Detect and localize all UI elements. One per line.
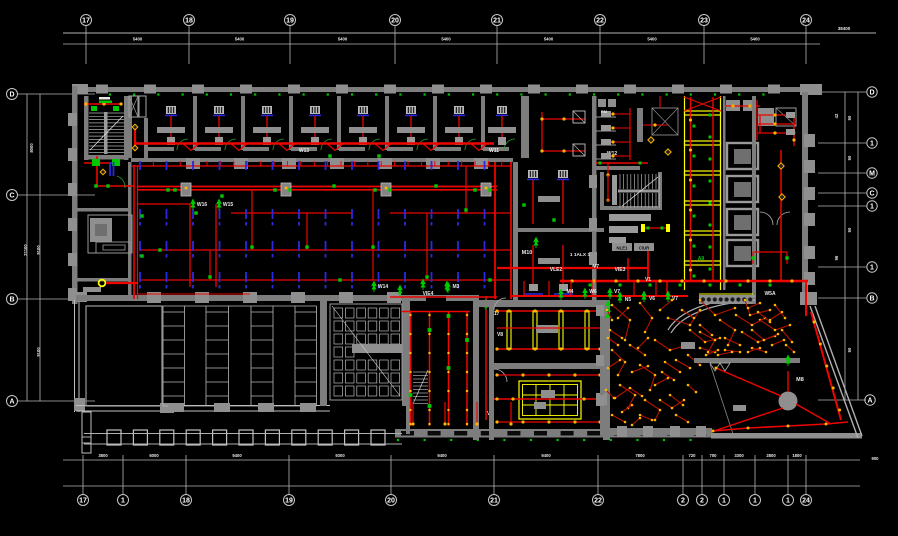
svg-text:24: 24 xyxy=(802,17,810,24)
svg-text:M10: M10 xyxy=(522,250,533,256)
svg-text:1: 1 xyxy=(121,497,125,504)
svg-text:9100: 9100 xyxy=(36,245,41,255)
svg-text:50: 50 xyxy=(847,155,852,160)
svg-text:W15: W15 xyxy=(223,202,234,208)
svg-text:38400: 38400 xyxy=(838,26,851,31)
svg-text:C: C xyxy=(869,190,874,197)
svg-text:W6: W6 xyxy=(589,289,597,295)
svg-text:20: 20 xyxy=(391,17,399,24)
svg-text:W13: W13 xyxy=(299,148,310,154)
svg-text:1800: 1800 xyxy=(792,453,802,458)
svg-text:24: 24 xyxy=(802,497,810,504)
svg-text:96: 96 xyxy=(834,255,839,260)
svg-text:M: M xyxy=(869,170,875,177)
svg-text:20: 20 xyxy=(387,497,395,504)
svg-text:9400: 9400 xyxy=(437,453,447,458)
svg-text:21: 21 xyxy=(490,497,498,504)
svg-text:19: 19 xyxy=(286,17,294,24)
svg-text:1: 1 xyxy=(753,497,757,504)
svg-text:N5: N5 xyxy=(625,297,632,303)
svg-text:8000: 8000 xyxy=(29,143,34,153)
svg-text:2800: 2800 xyxy=(766,453,776,458)
svg-text:C/UR: C/UR xyxy=(639,246,650,251)
svg-text:42: 42 xyxy=(834,113,839,118)
svg-text:V7: V7 xyxy=(672,296,678,302)
svg-text:700: 700 xyxy=(710,453,718,458)
svg-text:5400: 5400 xyxy=(647,37,657,42)
svg-text:18: 18 xyxy=(182,497,190,504)
svg-text:5400: 5400 xyxy=(235,37,245,42)
svg-text:1: 1 xyxy=(870,203,874,210)
svg-text:D: D xyxy=(9,91,14,98)
svg-text:A: A xyxy=(9,398,14,405)
svg-text:9300: 9300 xyxy=(335,453,345,458)
svg-text:17: 17 xyxy=(82,17,90,24)
svg-text:9400: 9400 xyxy=(232,453,242,458)
svg-text:W11: W11 xyxy=(489,148,499,154)
svg-text:A9: A9 xyxy=(698,256,705,262)
svg-text:W16: W16 xyxy=(197,202,208,208)
svg-text:21100: 21100 xyxy=(23,244,28,256)
svg-text:1: 1 xyxy=(786,497,790,504)
svg-text:1: 1 xyxy=(870,140,874,147)
svg-text:A: A xyxy=(867,397,872,404)
svg-text:1: 1 xyxy=(870,264,874,271)
svg-text:5400: 5400 xyxy=(441,37,451,42)
svg-text:5400: 5400 xyxy=(133,37,143,42)
svg-text:V6: V6 xyxy=(649,296,655,302)
svg-text:NLE1: NLE1 xyxy=(617,246,629,251)
svg-text:B: B xyxy=(9,296,14,303)
svg-text:21: 21 xyxy=(493,17,501,24)
svg-text:W5A: W5A xyxy=(764,291,776,297)
svg-text:1 1ALX 1: 1 1ALX 1 xyxy=(570,252,591,258)
svg-text:50: 50 xyxy=(847,347,852,352)
svg-text:5400: 5400 xyxy=(338,37,348,42)
svg-text:1: 1 xyxy=(722,497,726,504)
svg-text:22: 22 xyxy=(594,497,602,504)
svg-text:M4: M4 xyxy=(567,289,574,295)
svg-text:17: 17 xyxy=(79,497,87,504)
svg-text:7800: 7800 xyxy=(635,453,645,458)
svg-text:VIE4: VIE4 xyxy=(423,291,434,297)
svg-text:5400: 5400 xyxy=(544,37,554,42)
svg-text:RM: RM xyxy=(601,109,608,114)
svg-text:V8: V8 xyxy=(497,332,503,338)
svg-text:V7: V7 xyxy=(593,264,599,270)
svg-text:C: C xyxy=(9,192,14,199)
svg-text:720: 720 xyxy=(689,453,697,458)
svg-text:50: 50 xyxy=(847,115,852,120)
svg-text:VLE2: VLE2 xyxy=(550,267,563,273)
svg-text:M8: M8 xyxy=(796,377,804,383)
svg-text:6000: 6000 xyxy=(149,453,159,458)
svg-text:3300: 3300 xyxy=(734,453,744,458)
svg-text:V1: V1 xyxy=(645,277,651,283)
svg-text:9100: 9100 xyxy=(36,347,41,357)
svg-text:W14: W14 xyxy=(378,284,389,290)
svg-text:19: 19 xyxy=(285,497,293,504)
svg-text:VIE3: VIE3 xyxy=(615,267,626,273)
svg-text:5400: 5400 xyxy=(750,37,760,42)
svg-text:50: 50 xyxy=(847,227,852,232)
svg-text:18: 18 xyxy=(185,17,193,24)
svg-text:B: B xyxy=(869,295,874,302)
svg-text:2: 2 xyxy=(700,497,704,504)
svg-text:900: 900 xyxy=(872,456,880,461)
svg-text:23: 23 xyxy=(700,17,708,24)
svg-text:9400: 9400 xyxy=(541,453,551,458)
svg-text:3800: 3800 xyxy=(98,453,108,458)
svg-text:M3: M3 xyxy=(453,284,460,290)
svg-text:2: 2 xyxy=(681,497,685,504)
svg-text:22: 22 xyxy=(596,17,604,24)
svg-text:D: D xyxy=(869,89,874,96)
